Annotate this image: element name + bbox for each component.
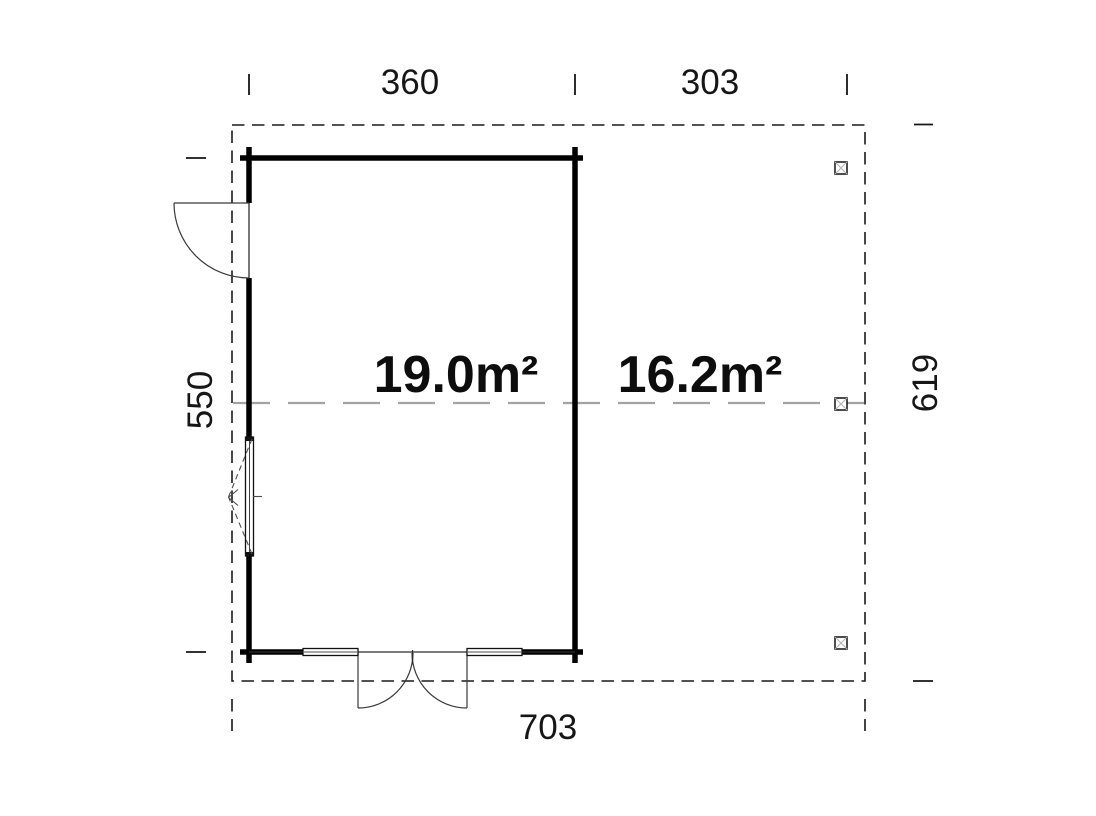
floor-plan-drawing: 360 303 550 619 703 19.0m² 16.2m²: [0, 0, 1096, 816]
post-symbol-bottom: [835, 637, 847, 649]
left-door-swing: [174, 203, 249, 278]
dim-left-label: 550: [181, 371, 220, 429]
post-symbol-top: [835, 162, 847, 174]
left-window-cap-bottom: [245, 552, 254, 556]
dim-top-left-label: 360: [381, 63, 439, 102]
left-window-cap-top: [245, 437, 254, 441]
bottom-double-door: [358, 650, 467, 708]
dim-bottom-label: 703: [519, 708, 577, 747]
canopy-area-label: 16.2m²: [618, 346, 783, 404]
bottom-door-arc-right: [412, 653, 467, 708]
floor-plan-canvas: 360 303 550 619 703 19.0m² 16.2m²: [0, 0, 1096, 816]
dim-right-label: 619: [906, 354, 945, 412]
post-symbol-middle: [835, 398, 847, 410]
cabin-walls: [240, 147, 583, 663]
left-window: [229, 437, 263, 556]
left-window-arrow-icon: [229, 490, 239, 506]
canopy-posts: [835, 162, 847, 649]
dimension-labels: 360 303 550 619 703: [181, 63, 945, 747]
left-door-arc: [174, 203, 249, 278]
main-room-area-label: 19.0m²: [374, 346, 539, 404]
area-labels: 19.0m² 16.2m²: [374, 346, 783, 404]
dim-top-right-label: 303: [681, 63, 739, 102]
